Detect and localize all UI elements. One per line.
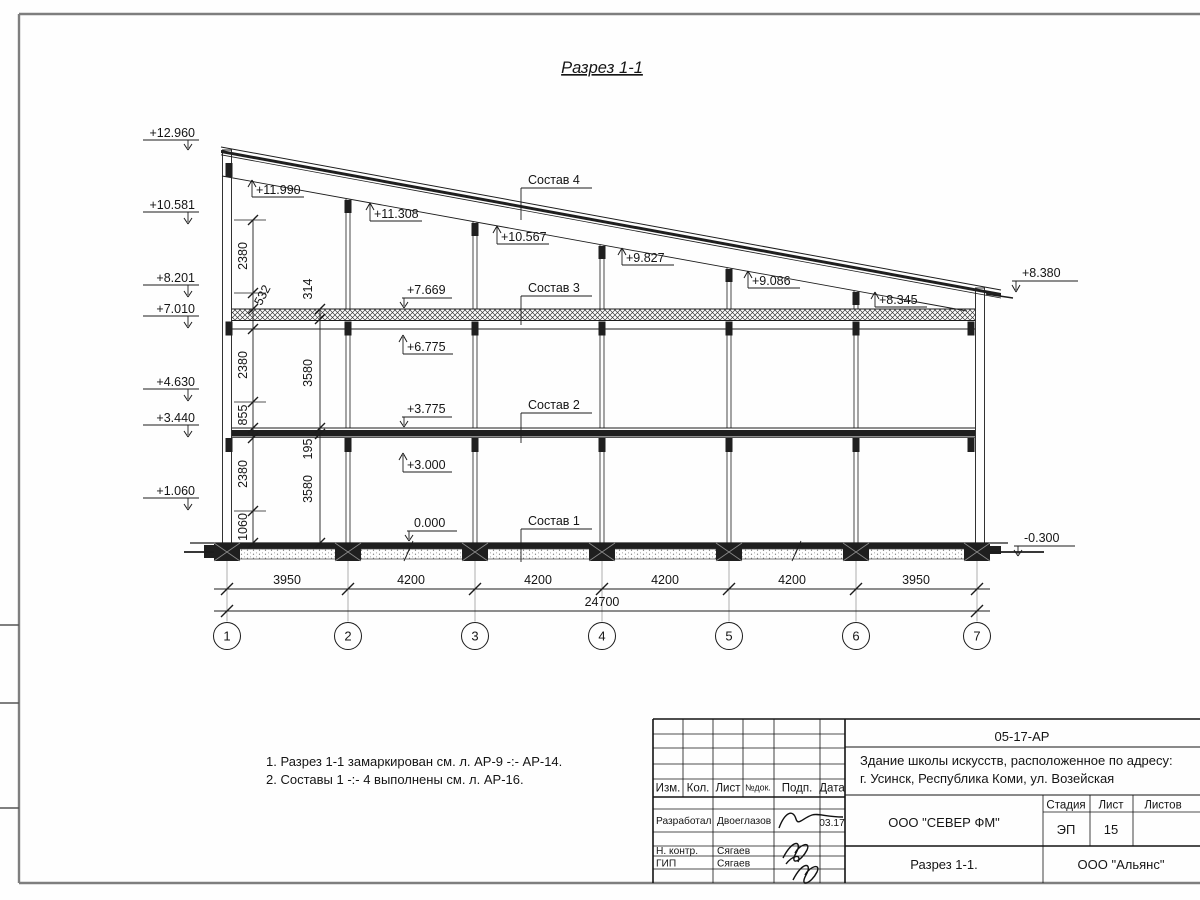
svg-text:+3.000: +3.000 — [407, 458, 446, 472]
right-wall — [976, 288, 985, 543]
stamp-object-line2: г. Усинск, Республика Коми, ул. Возейска… — [860, 771, 1114, 786]
stamp-col-list: Лист — [716, 783, 742, 795]
svg-text:7: 7 — [973, 629, 980, 644]
elevation-mark: +10.567 — [493, 226, 549, 244]
svg-text:Состав 1: Состав 1 — [528, 514, 580, 528]
elevation-mark: +4.630 — [143, 375, 199, 401]
svg-text:+8.380: +8.380 — [1022, 266, 1061, 280]
stamp-col-doc: №док. — [745, 783, 771, 793]
svg-text:Состав 2: Состав 2 — [528, 398, 580, 412]
vdim-label: 314 — [301, 279, 315, 300]
svg-text:+12.960: +12.960 — [149, 126, 195, 140]
svg-text:+3.775: +3.775 — [407, 402, 446, 416]
vdim-label: 2380 — [236, 351, 250, 379]
svg-text:4: 4 — [598, 629, 605, 644]
stamp-object-line1: Здание школы искусств, расположенное по … — [860, 753, 1173, 768]
svg-text:+1.060: +1.060 — [156, 484, 195, 498]
stamp-sheets-header: Листов — [1144, 800, 1181, 812]
right-elevation-marks: +8.380 -0.300 — [1012, 266, 1078, 556]
signature-gip — [793, 865, 818, 883]
signature-ncontrol — [783, 843, 808, 864]
stamp-name-developer: Двоеглазов — [717, 816, 771, 827]
grid-extension-lines — [227, 561, 977, 622]
elevation-mark: +10.581 — [143, 198, 199, 224]
vdim-label: 3580 — [301, 359, 315, 387]
total-dim-label: 24700 — [585, 595, 620, 609]
svg-text:1: 1 — [223, 629, 230, 644]
grid-axes: 1 2 3 4 5 6 7 — [214, 623, 991, 650]
hdim-label: 3950 — [273, 573, 301, 587]
stamp-sheet-title: Разрез 1-1. — [910, 857, 977, 872]
vdim-chain-left: 2380 532 2380 855 2380 1060 — [234, 215, 274, 548]
svg-text:+3.440: +3.440 — [156, 411, 195, 425]
left-wall — [223, 150, 232, 543]
svg-text:Состав 4: Состав 4 — [528, 173, 580, 187]
svg-text:3: 3 — [471, 629, 478, 644]
stamp-name-ncontrol: Сягаев — [717, 846, 750, 857]
elevation-mark: +11.990 — [248, 180, 304, 197]
svg-text:+4.630: +4.630 — [156, 375, 195, 389]
hdim-label: 4200 — [524, 573, 552, 587]
stamp-org: ООО "Альянс" — [1078, 857, 1165, 872]
stamp-company: ООО "СЕВЕР ФМ" — [888, 815, 1000, 830]
stamp-name-gip: Сягаев — [717, 859, 750, 870]
elevation-mark: +8.380 — [1012, 266, 1078, 292]
elevation-mark: +12.960 — [143, 126, 199, 150]
svg-text:+9.827: +9.827 — [626, 251, 665, 265]
vdim-label: 2380 — [236, 460, 250, 488]
elevation-mark: +7.010 — [143, 302, 199, 328]
elevation-mark: +11.308 — [366, 203, 422, 221]
drawing-title: Разрез 1-1 — [561, 59, 643, 77]
axis-bubble: 5 — [716, 623, 743, 650]
axis-bubble: 7 — [964, 623, 991, 650]
axis-bubble: 4 — [589, 623, 616, 650]
elevation-mark: +1.060 — [143, 484, 199, 510]
svg-text:+7.010: +7.010 — [156, 302, 195, 316]
stamp-col-kol: Кол. — [687, 783, 710, 795]
stamp-col-data: Дата — [819, 783, 845, 795]
svg-text:+7.669: +7.669 — [407, 283, 446, 297]
floor-slab — [232, 428, 975, 438]
stamp-doc-number: 05-17-АР — [995, 729, 1050, 744]
note-line: 2. Составы 1 -:- 4 выполнены см. л. АР-1… — [266, 772, 524, 787]
roof — [221, 147, 1013, 311]
svg-text:+11.990: +11.990 — [256, 183, 301, 197]
vdim-label: 1060 — [236, 513, 250, 541]
vdim-label: 2380 — [236, 242, 250, 270]
svg-text:6: 6 — [852, 629, 859, 644]
axis-bubble: 6 — [843, 623, 870, 650]
inner-level-marks: +7.669 +6.775 +3.775 +3.000 0.000 — [399, 283, 457, 541]
hdim-label: 4200 — [397, 573, 425, 587]
elevation-mark: 0.000 — [405, 516, 457, 541]
axis-bubble: 3 — [462, 623, 489, 650]
svg-text:+10.581: +10.581 — [149, 198, 195, 212]
svg-text:Состав 3: Состав 3 — [528, 281, 580, 295]
vdim-label: 532 — [251, 283, 273, 308]
svg-text:+8.201: +8.201 — [156, 271, 195, 285]
notes: 1. Разрез 1-1 замаркирован см. л. АР-9 -… — [266, 754, 562, 787]
stamp-stage-header: Стадия — [1046, 800, 1085, 812]
stamp-col-podp: Подп. — [782, 783, 813, 795]
stamp-role-developer: Разработал — [656, 815, 712, 827]
vdim-label: 3580 — [301, 475, 315, 503]
svg-text:+6.775: +6.775 — [407, 340, 446, 354]
left-elevation-marks: +12.960 +10.581 +8.201 +7.010 +4.630 +3.… — [143, 126, 199, 510]
stamp-stage-value: ЭП — [1057, 822, 1076, 837]
elevation-mark: +6.775 — [399, 335, 453, 354]
svg-text:+9.086: +9.086 — [752, 274, 791, 288]
svg-text:5: 5 — [725, 629, 732, 644]
hdim-label: 4200 — [651, 573, 679, 587]
svg-text:+10.567: +10.567 — [501, 230, 547, 244]
svg-text:0.000: 0.000 — [414, 516, 445, 530]
elevation-mark: +8.345 — [871, 292, 927, 307]
svg-text:2: 2 — [344, 629, 351, 644]
vdim-label: 855 — [236, 405, 250, 426]
svg-text:+11.308: +11.308 — [374, 207, 419, 221]
elevation-mark: +3.775 — [400, 402, 452, 427]
title-block: Изм. Кол. Лист №док. Подп. Дата Разработ… — [653, 719, 1200, 883]
svg-text:-0.300: -0.300 — [1024, 531, 1059, 545]
svg-text:+8.345: +8.345 — [879, 293, 918, 307]
stamp-sheet-value: 15 — [1104, 822, 1118, 837]
note-line: 1. Разрез 1-1 замаркирован см. л. АР-9 -… — [266, 754, 562, 769]
elevation-mark: +3.440 — [143, 411, 199, 437]
stamp-col-izm: Изм. — [656, 783, 681, 795]
elevation-mark: +3.000 — [399, 453, 452, 472]
axis-bubble: 2 — [335, 623, 362, 650]
stamp-role-ncontrol: Н. контр. — [656, 846, 698, 857]
hdim-label: 4200 — [778, 573, 806, 587]
vdim-label: 195 — [301, 439, 315, 460]
elevation-mark: +7.669 — [400, 283, 452, 308]
section-drawing: Разрез 1-1 — [0, 0, 1200, 900]
drawing-sheet: Разрез 1-1 — [0, 0, 1200, 900]
elevation-mark: +8.201 — [143, 271, 199, 297]
axis-bubble: 1 — [214, 623, 241, 650]
stamp-date: 03.17 — [819, 818, 845, 829]
stamp-role-gip: ГИП — [656, 859, 676, 870]
hdim-label: 3950 — [902, 573, 930, 587]
stamp-sheet-header: Лист — [1099, 800, 1125, 812]
